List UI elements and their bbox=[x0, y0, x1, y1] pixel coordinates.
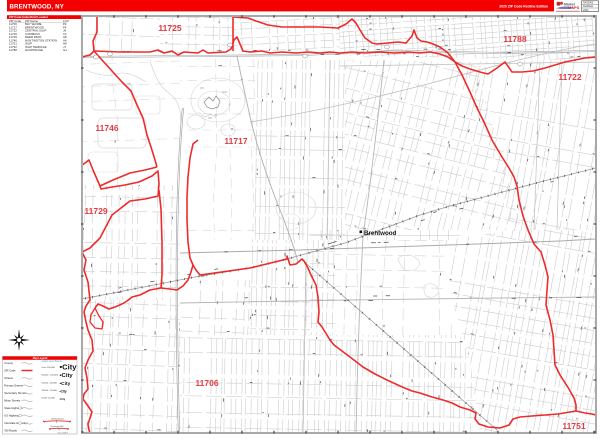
svg-text:County: County bbox=[4, 361, 13, 365]
svg-text:2020: 2020 bbox=[583, 9, 589, 12]
svg-text:Primary Streets: Primary Streets bbox=[4, 384, 23, 388]
svg-text:11717: 11717 bbox=[224, 136, 247, 146]
svg-text:11729: 11729 bbox=[84, 206, 107, 216]
svg-text:2020 ZIP Code Redline Edition: 2020 ZIP Code Redline Edition bbox=[499, 5, 548, 9]
svg-text:MarketMAPS: MarketMAPS bbox=[58, 431, 69, 434]
svg-text:Streets: Streets bbox=[4, 376, 13, 380]
svg-text:11788: 11788 bbox=[503, 34, 526, 44]
svg-text:RedMaps: RedMaps bbox=[583, 5, 594, 8]
svg-text:11722: 11722 bbox=[558, 72, 581, 82]
svg-text:Minor Streets: Minor Streets bbox=[4, 399, 21, 403]
svg-text:Interstate Highways: Interstate Highways bbox=[4, 421, 28, 425]
svg-text:11751: 11751 bbox=[562, 421, 585, 431]
svg-text:•City: •City bbox=[60, 398, 66, 401]
svg-text:11706: 11706 bbox=[195, 378, 218, 388]
svg-text:25,000 - 50,000: 25,000 - 50,000 bbox=[42, 382, 58, 384]
svg-text:11746: 11746 bbox=[95, 123, 118, 133]
svg-text:50,000 - 100,000: 50,000 - 100,000 bbox=[42, 375, 59, 377]
svg-text:•City: •City bbox=[60, 381, 71, 387]
svg-text:•City: •City bbox=[60, 389, 67, 393]
svg-text:•City: •City bbox=[60, 373, 74, 379]
svg-text:BRENTWOOD, NY: BRENTWOOD, NY bbox=[10, 3, 64, 10]
svg-text:10,000 - 25,000: 10,000 - 25,000 bbox=[42, 390, 58, 392]
svg-text:11725: 11725 bbox=[158, 23, 181, 33]
svg-text:•City: •City bbox=[60, 363, 78, 372]
svg-text:G1: G1 bbox=[63, 48, 67, 52]
svg-text:Passenger Rail: Passenger Rail bbox=[51, 425, 64, 428]
svg-text:Over 100,000: Over 100,000 bbox=[42, 366, 56, 369]
svg-text:Toll Roads: Toll Roads bbox=[4, 429, 17, 433]
svg-text:NASDAQ: NASDAQ bbox=[583, 2, 593, 5]
svg-text:Amtrak Station: Amtrak Station bbox=[52, 417, 64, 420]
svg-text:Under 10,000: Under 10,000 bbox=[42, 396, 56, 399]
svg-text:ZIP Code: ZIP Code bbox=[4, 369, 16, 373]
svg-text:HAUPPAUGE: HAUPPAUGE bbox=[25, 48, 43, 52]
svg-text:11788: 11788 bbox=[9, 48, 17, 52]
svg-text:Brentwood: Brentwood bbox=[364, 230, 397, 237]
